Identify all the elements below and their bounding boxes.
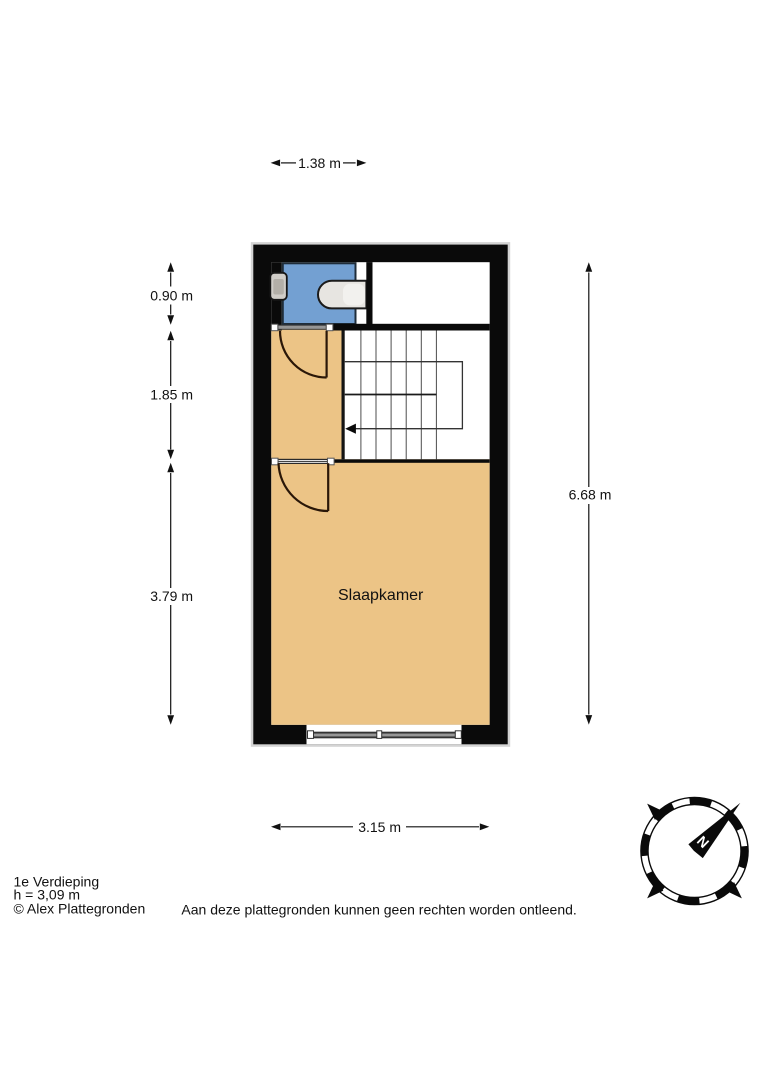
svg-text:Slaapkamer: Slaapkamer <box>338 587 424 604</box>
svg-text:3.79 m: 3.79 m <box>150 588 193 604</box>
svg-text:1.38 m: 1.38 m <box>298 155 341 171</box>
svg-text:0.90 m: 0.90 m <box>150 288 193 304</box>
svg-text:3.15 m: 3.15 m <box>358 819 401 835</box>
svg-text:6.68 m: 6.68 m <box>569 487 612 503</box>
svg-text:© Alex Plattegronden: © Alex Plattegronden <box>14 901 146 917</box>
svg-text:1.85 m: 1.85 m <box>150 386 193 402</box>
svg-text:Aan deze plattegronden kunnen: Aan deze plattegronden kunnen geen recht… <box>181 902 576 918</box>
